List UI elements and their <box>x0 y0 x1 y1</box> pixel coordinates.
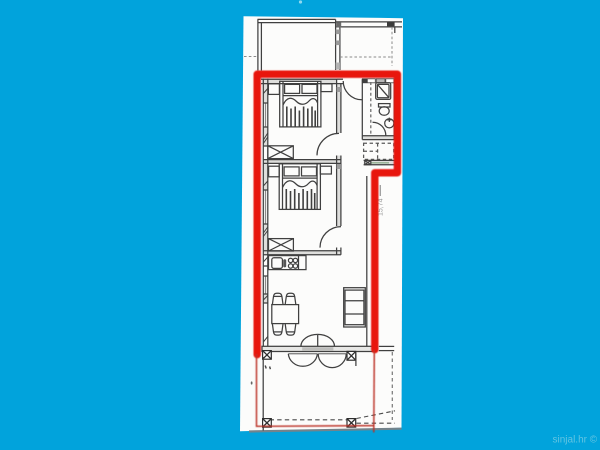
svg-text:sinjal.hr ©: sinjal.hr © <box>553 435 598 446</box>
svg-text:15,74: 15,74 <box>378 198 385 216</box>
